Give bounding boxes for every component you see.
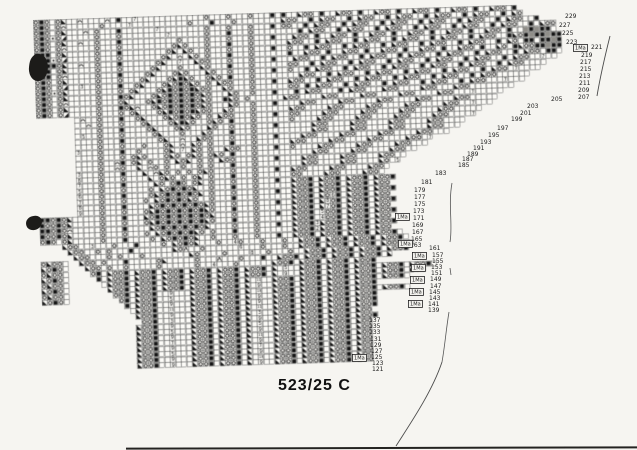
- scan-curve-top-right: [597, 36, 610, 96]
- scan-line-right-upper: [450, 183, 452, 242]
- scan-curve-bottom-right: [396, 362, 442, 446]
- scan-line-speck: [450, 268, 451, 275]
- scanned-pattern-page: 2292272252232212192172152132112092072052…: [0, 0, 637, 450]
- pattern-number-label: 523/25 C: [278, 377, 351, 395]
- scan-line-right-lower: [442, 312, 449, 362]
